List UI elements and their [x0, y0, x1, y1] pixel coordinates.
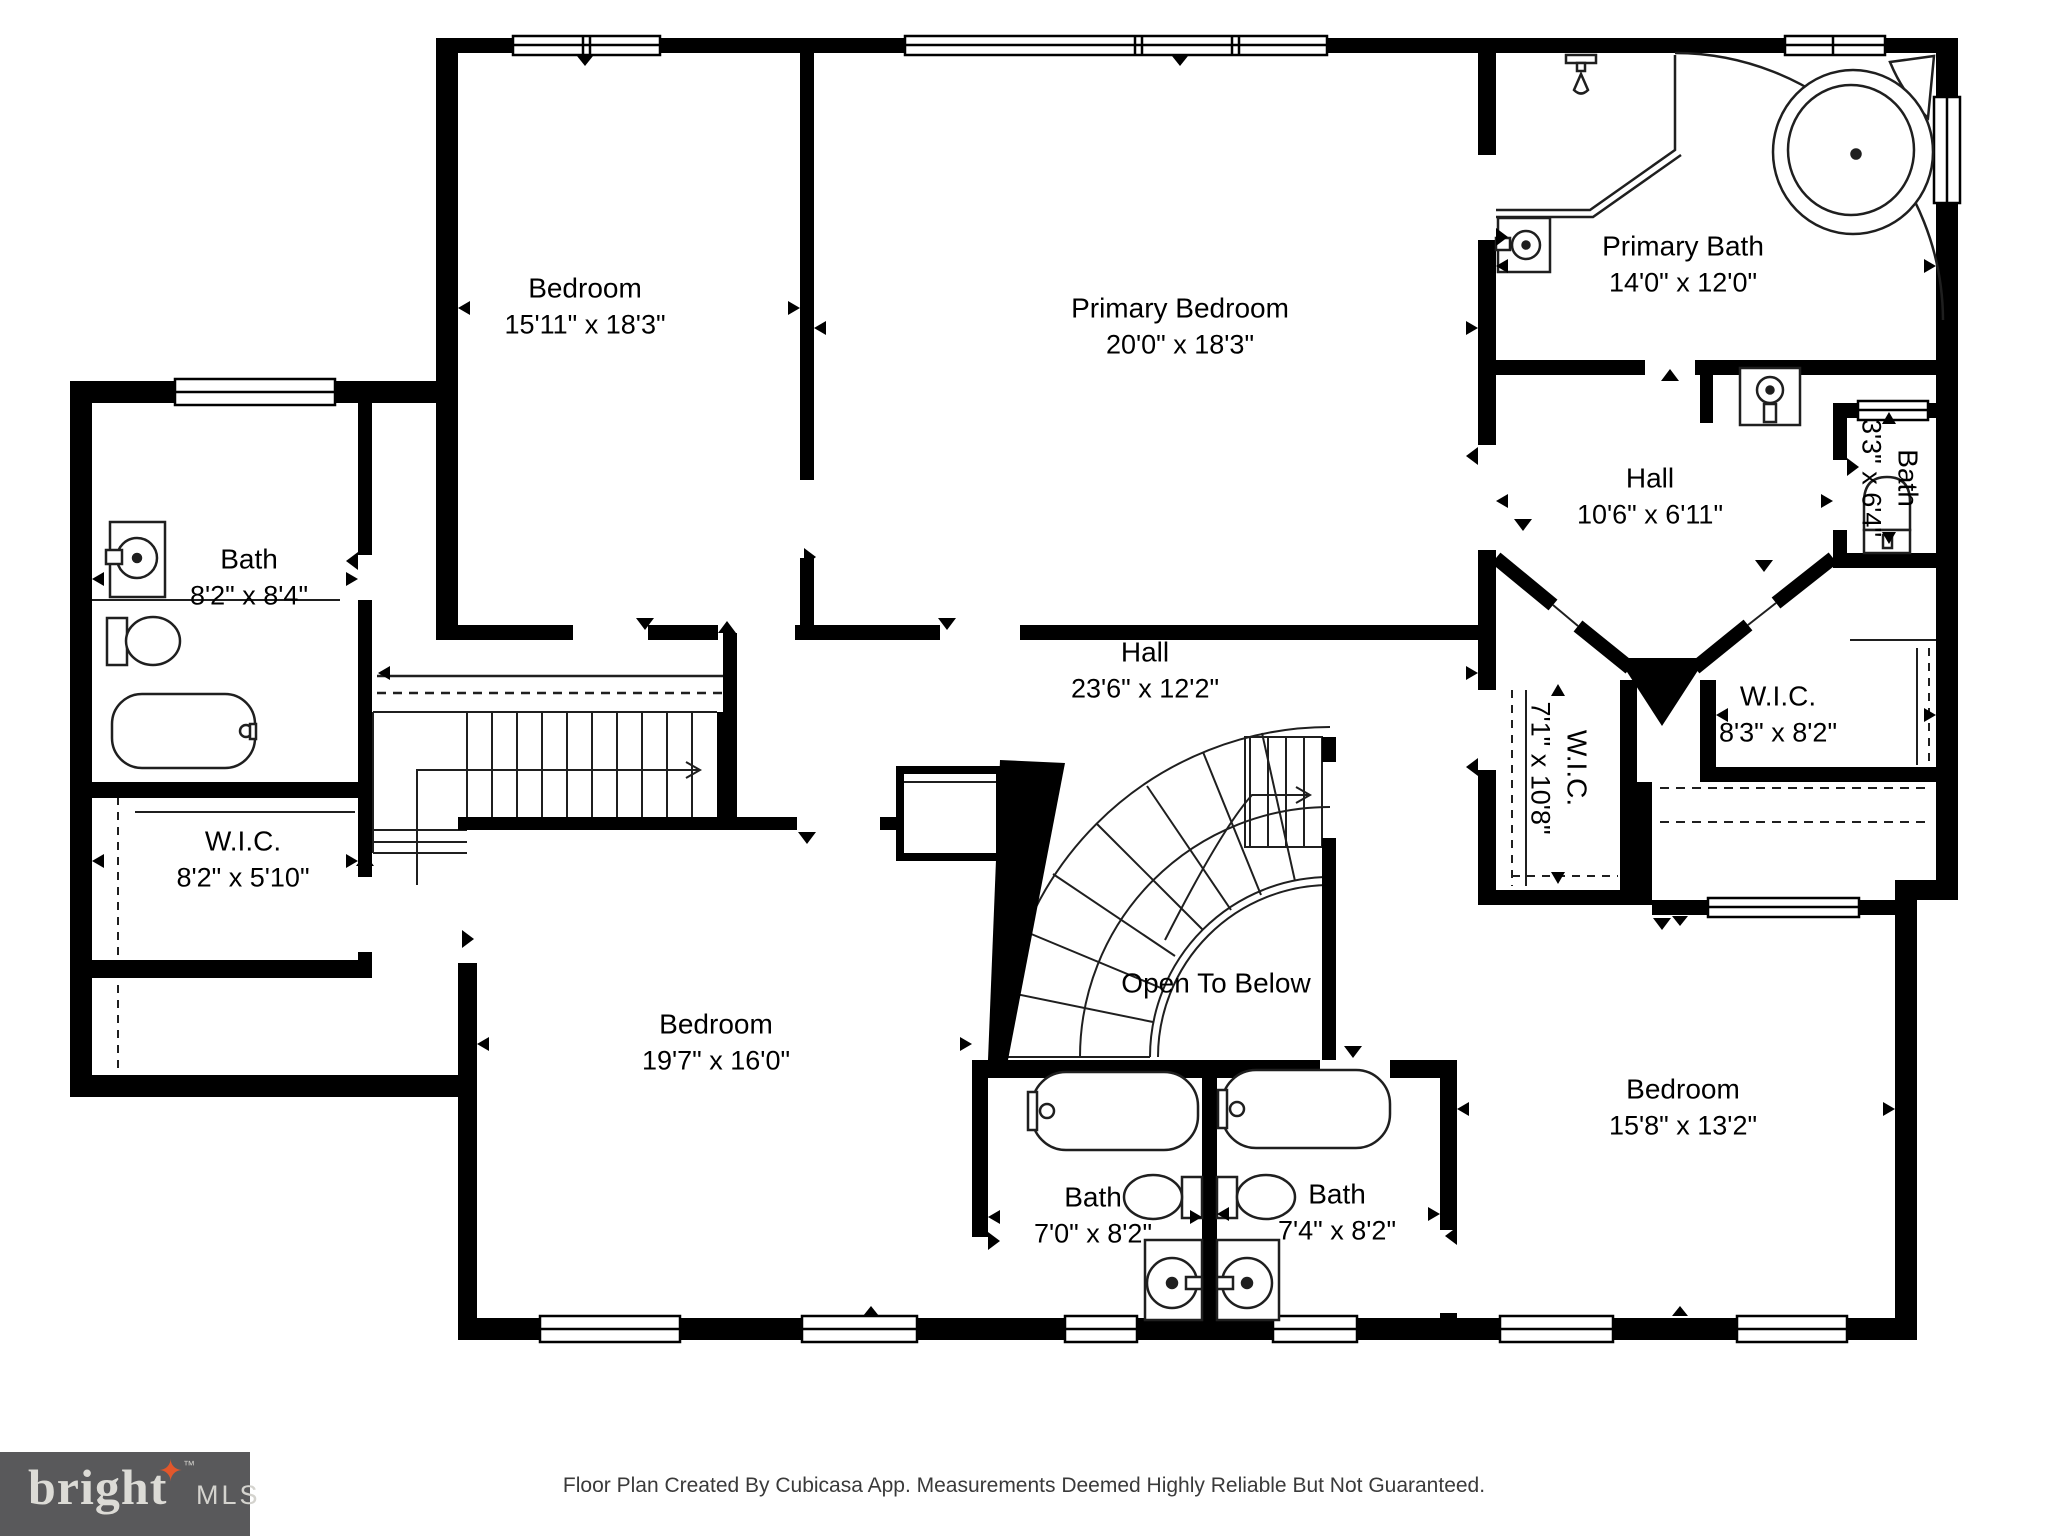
room-dimensions: 15'8" x 13'2"	[1609, 1109, 1757, 1145]
staircase-straight	[373, 712, 717, 885]
room-name: W.I.C.	[176, 824, 309, 861]
room-label-wic-primary: W.I.C.7'1" x 10'8"	[1522, 701, 1595, 834]
room-label-bedroom-bottom-left: Bedroom19'7" x 16'0"	[642, 1007, 790, 1080]
window	[513, 36, 660, 55]
room-label-bedroom-top-left: Bedroom15'11" x 18'3"	[504, 271, 665, 344]
sink	[106, 522, 165, 597]
room-dimensions: 10'6" x 6'11"	[1577, 498, 1723, 534]
window	[540, 1316, 680, 1342]
window	[1858, 401, 1928, 420]
room-label-wic-left: W.I.C.8'2" x 5'10"	[176, 824, 309, 897]
room-label-hall-primary: Hall10'6" x 6'11"	[1577, 461, 1723, 534]
room-dimensions: 7'0" x 8'2"	[1034, 1217, 1152, 1253]
room-dimensions: 8'3" x 8'2"	[1719, 716, 1837, 752]
room-label-primary-bath: Primary Bath14'0" x 12'0"	[1602, 229, 1764, 302]
window	[1708, 898, 1859, 917]
floorplan-disclaimer: Floor Plan Created By Cubicasa App. Meas…	[0, 1474, 2048, 1498]
logo-brand-text: bright	[28, 1458, 167, 1516]
window	[1500, 1316, 1613, 1342]
room-label-bath-top-right: Bath3'3" x 6'4"	[1853, 419, 1926, 537]
room-dimensions: 23'6" x 12'2"	[1071, 672, 1219, 708]
room-dimensions: 20'0" x 18'3"	[1071, 328, 1289, 364]
room-label-bath-left: Bath8'2" x 8'4"	[190, 542, 308, 615]
room-name: Bath	[1034, 1180, 1152, 1217]
room-label-hall-main: Hall23'6" x 12'2"	[1071, 635, 1219, 708]
room-name: Bath	[1888, 419, 1925, 537]
room-name: W.I.C.	[1719, 679, 1837, 716]
room-label-wic-right: W.I.C.8'3" x 8'2"	[1719, 679, 1837, 752]
sink	[1740, 368, 1800, 425]
bathtub	[1028, 1072, 1198, 1150]
window	[175, 379, 335, 405]
sink	[1145, 1240, 1202, 1320]
window	[1737, 1316, 1847, 1342]
room-name: Bedroom	[642, 1007, 790, 1044]
logo-suffix-text: MLS	[196, 1480, 261, 1511]
railing	[377, 676, 723, 693]
room-name: Bath	[1278, 1177, 1396, 1214]
window	[1065, 1316, 1137, 1342]
room-label-bath-center-left: Bath7'0" x 8'2"	[1034, 1180, 1152, 1253]
star-icon: ✦	[158, 1454, 183, 1489]
room-name: Primary Bath	[1602, 229, 1764, 266]
room-dimensions: 14'0" x 12'0"	[1602, 266, 1764, 302]
bathtub	[1218, 1070, 1390, 1148]
window	[802, 1316, 917, 1342]
room-name: W.I.C.	[1557, 701, 1594, 834]
room-label-bedroom-bottom-right: Bedroom15'8" x 13'2"	[1609, 1072, 1757, 1145]
window	[1934, 97, 1960, 203]
room-dimensions: 8'2" x 8'4"	[190, 579, 308, 615]
shower	[1496, 55, 1681, 217]
window	[1273, 1316, 1357, 1342]
sink	[1217, 1240, 1279, 1320]
room-label-bath-center-right: Bath7'4" x 8'2"	[1278, 1177, 1396, 1250]
room-label-open-to-below: Open To Below	[1121, 966, 1310, 1003]
room-name: Hall	[1577, 461, 1723, 498]
room-name: Hall	[1071, 635, 1219, 672]
room-dimensions: 15'11" x 18'3"	[504, 308, 665, 344]
trademark-symbol: ™	[183, 1458, 195, 1472]
room-label-primary-bedroom: Primary Bedroom20'0" x 18'3"	[1071, 291, 1289, 364]
room-dimensions: 8'2" x 5'10"	[176, 861, 309, 897]
room-dimensions: 19'7" x 16'0"	[642, 1044, 790, 1080]
room-name: Bedroom	[504, 271, 665, 308]
room-dimensions: 3'3" x 6'4"	[1853, 419, 1889, 537]
room-dimensions: 7'1" x 10'8"	[1522, 701, 1558, 834]
floor-plan: Bedroom15'11" x 18'3"Primary Bedroom20'0…	[0, 0, 2048, 1536]
room-name: Primary Bedroom	[1071, 291, 1289, 328]
bathtub	[112, 694, 256, 768]
toilet	[107, 617, 180, 665]
window	[1785, 36, 1885, 55]
window	[905, 36, 1327, 55]
room-name: Bath	[190, 542, 308, 579]
closet	[904, 774, 996, 853]
brightmls-logo: bright ✦ ™ MLS	[0, 1452, 250, 1536]
room-dimensions: 7'4" x 8'2"	[1278, 1214, 1396, 1250]
room-name: Open To Below	[1121, 966, 1310, 1003]
room-name: Bedroom	[1609, 1072, 1757, 1109]
